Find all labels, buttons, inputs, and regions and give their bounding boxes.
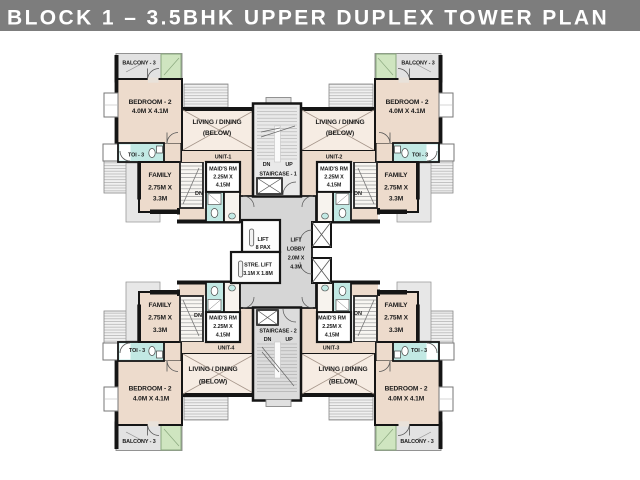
svg-text:BEDROOM - 2: BEDROOM - 2 xyxy=(129,386,172,393)
svg-text:3.3M: 3.3M xyxy=(389,196,404,203)
svg-text:BALCONY - 3: BALCONY - 3 xyxy=(400,439,433,445)
svg-text:DN: DN xyxy=(354,191,362,197)
svg-text:LIVING / DINING: LIVING / DINING xyxy=(192,119,241,126)
svg-text:2.75M X: 2.75M X xyxy=(384,315,409,322)
svg-text:DN: DN xyxy=(195,191,203,197)
svg-text:MAID'S RM: MAID'S RM xyxy=(318,316,346,322)
svg-text:DN: DN xyxy=(264,337,272,343)
svg-text:UP: UP xyxy=(285,337,293,343)
svg-text:2.25M X: 2.25M X xyxy=(324,175,344,181)
svg-text:BALCONY - 3: BALCONY - 3 xyxy=(122,61,155,67)
svg-text:UNIT-3: UNIT-3 xyxy=(323,346,340,352)
svg-text:(BELOW): (BELOW) xyxy=(199,379,227,386)
svg-text:STAIRCASE - 1: STAIRCASE - 1 xyxy=(259,172,296,178)
svg-text:STRE. LIFT: STRE. LIFT xyxy=(244,263,273,269)
svg-text:TOI - 3: TOI - 3 xyxy=(128,153,144,159)
svg-text:DN: DN xyxy=(354,311,362,317)
svg-text:TOI - 3: TOI - 3 xyxy=(129,348,145,354)
svg-text:UNIT-1: UNIT-1 xyxy=(215,155,232,161)
svg-text:2.25M X: 2.25M X xyxy=(322,324,342,330)
svg-text:MAID'S RM: MAID'S RM xyxy=(209,167,237,173)
svg-text:4.3M: 4.3M xyxy=(290,265,302,271)
svg-text:DN: DN xyxy=(263,162,271,168)
svg-text:4.15M: 4.15M xyxy=(327,183,342,189)
svg-text:3.1M X 1.8M: 3.1M X 1.8M xyxy=(243,271,273,277)
svg-text:BLOCK 1 – 3.5BHK UPPER DUPLEX: BLOCK 1 – 3.5BHK UPPER DUPLEX TOWER PLAN xyxy=(7,7,609,30)
svg-text:MAID'S RM: MAID'S RM xyxy=(320,167,348,173)
svg-text:BEDROOM - 2: BEDROOM - 2 xyxy=(129,99,172,106)
svg-text:FAMILY: FAMILY xyxy=(149,172,173,179)
svg-text:LOBBY: LOBBY xyxy=(287,247,306,253)
svg-text:2.25M X: 2.25M X xyxy=(213,324,233,330)
svg-text:2.75M X: 2.75M X xyxy=(148,185,173,192)
svg-text:BEDROOM - 2: BEDROOM - 2 xyxy=(385,386,428,393)
svg-text:4.0M X 4.1M: 4.0M X 4.1M xyxy=(389,108,426,115)
svg-text:8 PAX: 8 PAX xyxy=(256,245,271,251)
svg-text:4.15M: 4.15M xyxy=(216,183,231,189)
svg-text:LIFT: LIFT xyxy=(291,238,303,244)
svg-text:2.25M X: 2.25M X xyxy=(213,175,233,181)
svg-text:2.75M X: 2.75M X xyxy=(148,315,173,322)
svg-text:UNIT-2: UNIT-2 xyxy=(326,155,343,161)
svg-text:4.15M: 4.15M xyxy=(325,333,340,339)
svg-text:BALCONY - 3: BALCONY - 3 xyxy=(122,439,155,445)
svg-text:BEDROOM - 2: BEDROOM - 2 xyxy=(386,99,429,106)
svg-text:FAMILY: FAMILY xyxy=(149,302,173,309)
svg-text:FAMILY: FAMILY xyxy=(385,172,409,179)
svg-text:2.75M X: 2.75M X xyxy=(384,185,409,192)
svg-text:LIVING / DINING: LIVING / DINING xyxy=(188,366,237,373)
svg-text:(BELOW): (BELOW) xyxy=(329,379,357,386)
svg-text:STAIRCASE - 2: STAIRCASE - 2 xyxy=(259,329,296,335)
svg-text:UP: UP xyxy=(285,162,293,168)
svg-text:UNIT-4: UNIT-4 xyxy=(218,346,235,352)
svg-text:LIVING / DINING: LIVING / DINING xyxy=(318,366,367,373)
svg-text:3.3M: 3.3M xyxy=(153,196,168,203)
svg-text:4.0M X 4.1M: 4.0M X 4.1M xyxy=(132,108,169,115)
svg-text:3.3M: 3.3M xyxy=(389,327,404,334)
svg-text:TOI - 3: TOI - 3 xyxy=(411,348,427,354)
svg-text:4.0M X 4.1M: 4.0M X 4.1M xyxy=(133,396,170,403)
svg-text:TOI - 3: TOI - 3 xyxy=(412,153,428,159)
svg-text:(BELOW): (BELOW) xyxy=(326,130,354,137)
svg-text:2.0M X: 2.0M X xyxy=(288,256,305,262)
svg-text:LIFT: LIFT xyxy=(258,237,270,243)
svg-text:DN: DN xyxy=(194,313,202,319)
svg-text:(BELOW): (BELOW) xyxy=(203,130,231,137)
svg-text:FAMILY: FAMILY xyxy=(385,302,409,309)
svg-text:MAID'S RM: MAID'S RM xyxy=(209,316,237,322)
svg-text:LIVING / DINING: LIVING / DINING xyxy=(315,119,364,126)
svg-text:BALCONY - 3: BALCONY - 3 xyxy=(401,61,434,67)
svg-text:3.3M: 3.3M xyxy=(153,327,168,334)
svg-text:4.15M: 4.15M xyxy=(216,333,231,339)
svg-text:4.0M X 4.1M: 4.0M X 4.1M xyxy=(388,396,425,403)
